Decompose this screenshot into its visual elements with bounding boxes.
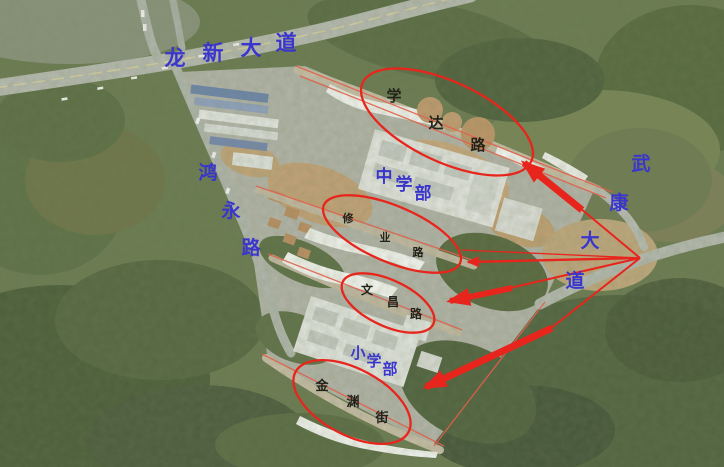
- area-label-char: 学: [366, 352, 381, 370]
- road-name-char: 金: [314, 378, 329, 394]
- road-name-char: 昌: [387, 295, 399, 309]
- road-name-char: 修: [342, 211, 355, 225]
- road-label-char: 鸿: [198, 161, 217, 184]
- road-name-char: 路: [413, 245, 425, 259]
- road-label-char: 康: [609, 191, 629, 214]
- road-label-char: 大: [580, 229, 599, 252]
- area-label-char: 学: [396, 174, 413, 195]
- road-label-char: 新: [203, 41, 224, 65]
- map-canvas[interactable]: 龙 新 大 道 鸿 永 路 武 康 大 道 中 学 部 小 学 部 学 达 路 …: [0, 0, 724, 467]
- road-name-char: 街: [374, 410, 388, 426]
- road-label-char: 大: [241, 36, 262, 60]
- road-label-char: 龙: [165, 46, 186, 70]
- area-label-char: 中: [376, 166, 393, 187]
- terrain-texture: [0, 0, 724, 467]
- road-label-char: 道: [276, 31, 297, 55]
- road-name-char: 达: [428, 114, 443, 132]
- road-name-char: 路: [470, 136, 486, 154]
- road-label-char: 永: [220, 199, 241, 222]
- road-label-char: 武: [631, 153, 650, 175]
- road-name-char: 路: [410, 306, 423, 321]
- road-name-char: 文: [361, 282, 374, 297]
- area-label-char: 部: [382, 360, 397, 378]
- satellite-map-image[interactable]: 龙 新 大 道 鸿 永 路 武 康 大 道 中 学 部 小 学 部 学 达 路 …: [0, 0, 724, 467]
- road-name-char: 学: [386, 87, 401, 105]
- area-label-char: 小: [350, 344, 365, 362]
- road-label-char: 路: [241, 236, 261, 259]
- road-name-char: 渊: [346, 394, 359, 410]
- road-label-char: 道: [565, 269, 584, 292]
- area-label-char: 部: [415, 183, 432, 204]
- road-name-char: 业: [380, 230, 391, 244]
